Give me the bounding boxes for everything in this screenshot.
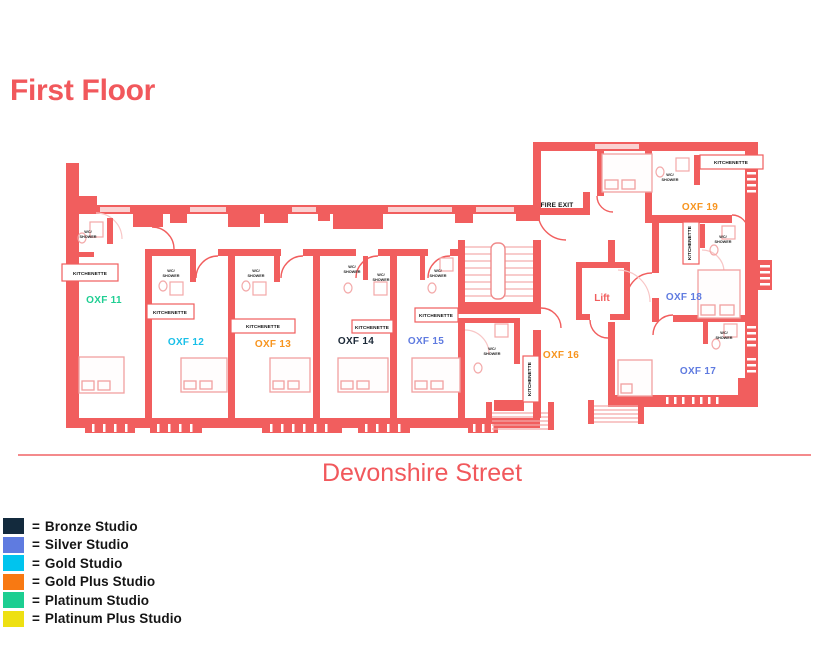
room-label-oxf-15: OXF 15 <box>408 336 444 347</box>
gold-swatch <box>3 555 24 571</box>
wc-label: WC/ <box>434 269 442 273</box>
wc-label: WC/ <box>252 269 260 273</box>
wc-label: WC/ <box>488 347 496 351</box>
equals-sign: = <box>32 593 40 608</box>
legend-label: Gold Studio <box>45 556 123 571</box>
wc-label: WC/ <box>348 265 356 269</box>
kitchenette-label: KITCHENETTE <box>687 226 692 260</box>
legend-item-silver: = Silver Studio <box>3 537 182 553</box>
platinum-plus-swatch <box>3 611 24 627</box>
room-label-oxf-18: OXF 18 <box>666 292 702 303</box>
equals-sign: = <box>32 611 40 626</box>
kitchenette-label: KITCHENETTE <box>714 160 748 165</box>
room-label-oxf-19: OXF 19 <box>682 202 718 213</box>
room-label-oxf-12: OXF 12 <box>168 337 204 348</box>
legend-label: Bronze Studio <box>45 519 138 534</box>
legend-item-bronze: = Bronze Studio <box>3 518 182 534</box>
svg-text:SHOWER: SHOWER <box>79 235 96 239</box>
fire-exit-label: FIRE EXIT <box>541 202 574 209</box>
kitchenette-label: KITCHENETTE <box>355 325 389 330</box>
svg-text:SHOWER: SHOWER <box>661 178 678 182</box>
legend-item-gold-plus: = Gold Plus Studio <box>3 574 182 590</box>
room-label-oxf-13: OXF 13 <box>255 339 291 350</box>
svg-text:SHOWER: SHOWER <box>429 274 446 278</box>
kitchenette-label: KITCHENETTE <box>153 310 187 315</box>
equals-sign: = <box>32 556 40 571</box>
street-divider <box>18 454 811 456</box>
svg-text:SHOWER: SHOWER <box>162 274 179 278</box>
svg-text:SHOWER: SHOWER <box>247 274 264 278</box>
svg-text:SHOWER: SHOWER <box>714 240 731 244</box>
legend-item-gold: = Gold Studio <box>3 555 182 571</box>
gold-plus-swatch <box>3 574 24 590</box>
wc-label: WC/ <box>377 273 385 277</box>
lift-label: Lift <box>594 293 610 304</box>
kitchenette-label: KITCHENETTE <box>73 271 107 276</box>
legend-label: Platinum Plus Studio <box>45 611 182 626</box>
equals-sign: = <box>32 574 40 589</box>
room-label-oxf-14: OXF 14 <box>338 336 374 347</box>
page: { "title": "First Floor", "street_label"… <box>0 0 828 648</box>
wc-label: WC/ <box>720 331 728 335</box>
silver-swatch <box>3 537 24 553</box>
room-label-oxf-11: OXF 11 <box>86 295 122 306</box>
equals-sign: = <box>32 519 40 534</box>
legend-item-platinum-plus: = Platinum Plus Studio <box>3 611 182 627</box>
street-label: Devonshire Street <box>17 459 827 488</box>
legend-label: Platinum Studio <box>45 593 149 608</box>
platinum-swatch <box>3 592 24 608</box>
wc-label: WC/ <box>719 235 727 239</box>
svg-text:SHOWER: SHOWER <box>483 352 500 356</box>
room-label-oxf-17: OXF 17 <box>680 366 716 377</box>
kitchenette-label: KITCHENETTE <box>527 362 532 396</box>
equals-sign: = <box>32 537 40 552</box>
kitchenette-label: KITCHENETTE <box>419 313 453 318</box>
svg-text:SHOWER: SHOWER <box>343 270 360 274</box>
legend-label: Gold Plus Studio <box>45 574 155 589</box>
bronze-swatch <box>3 518 24 534</box>
svg-text:SHOWER: SHOWER <box>372 278 389 282</box>
kitchenette-label: KITCHENETTE <box>246 324 280 329</box>
wc-label: WC/ <box>84 230 92 234</box>
staircase <box>465 240 533 302</box>
wc-label: WC/ <box>666 173 674 177</box>
legend: = Bronze Studio = Silver Studio = Gold S… <box>3 518 182 629</box>
legend-item-platinum: = Platinum Studio <box>3 592 182 608</box>
room-label-oxf-16: OXF 16 <box>543 350 579 361</box>
svg-text:SHOWER: SHOWER <box>715 336 732 340</box>
legend-label: Silver Studio <box>45 537 129 552</box>
wc-label: WC/ <box>167 269 175 273</box>
